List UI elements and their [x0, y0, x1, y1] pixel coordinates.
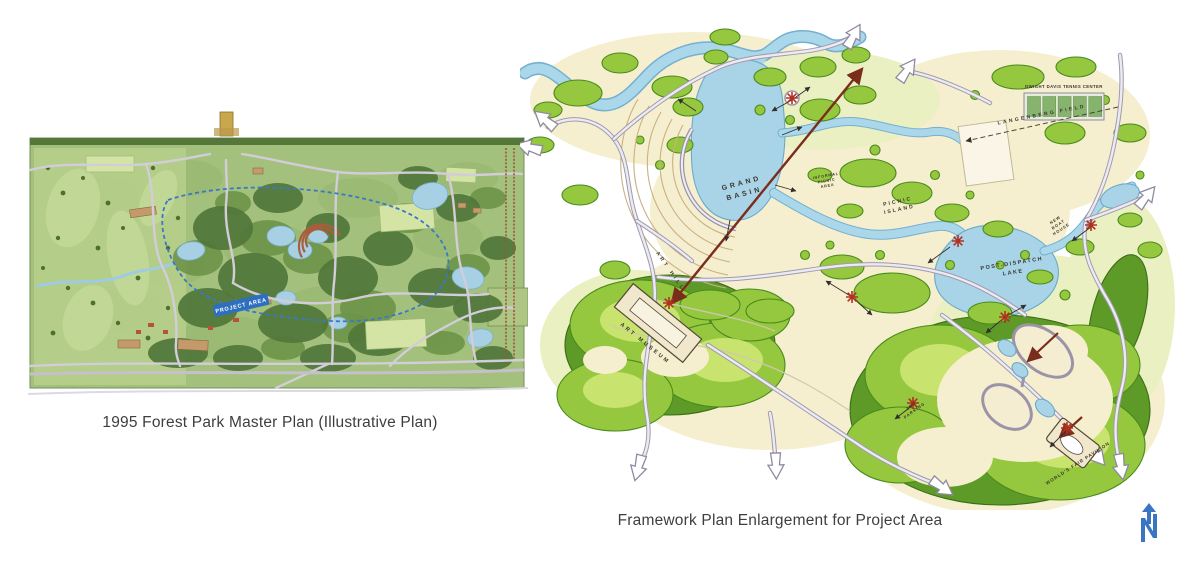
framework-plan-map: DWIGHT DAVIS TENNIS CENTER LANGENBERG FI…	[520, 15, 1180, 510]
master-plan-map: PROJECT AREA	[28, 108, 528, 398]
master-plan-caption: 1995 Forest Park Master Plan (Illustrati…	[28, 414, 512, 432]
master-plan-figure: PROJECT AREA	[28, 108, 528, 398]
north-arrow-icon	[1134, 502, 1164, 544]
north-tree-border	[30, 138, 524, 145]
tennis-center-label: DWIGHT DAVIS TENNIS CENTER	[1025, 84, 1103, 89]
slide: PROJECT AREA 1995 Forest Park Master Pla…	[0, 0, 1200, 585]
framework-plan-caption: Framework Plan Enlargement for Project A…	[520, 512, 1040, 530]
framework-plan-figure: DWIGHT DAVIS TENNIS CENTER LANGENBERG FI…	[520, 15, 1180, 510]
